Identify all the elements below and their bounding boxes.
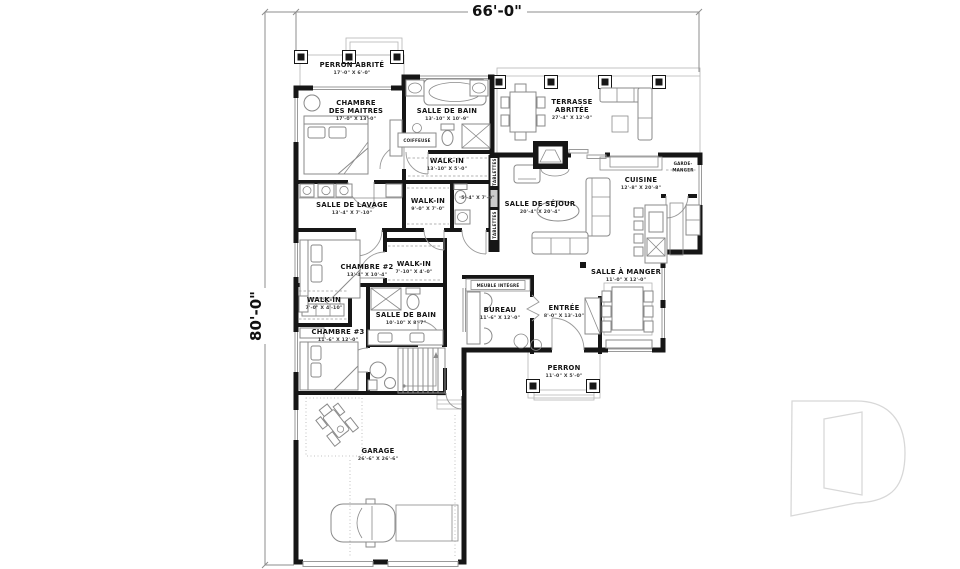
accordion-door-icon	[527, 295, 539, 321]
tablettes-label: TABLETTES	[492, 158, 497, 185]
office-chair-icon	[484, 328, 492, 344]
svg-text:SALLE À MANGER: SALLE À MANGER	[591, 267, 662, 276]
counter-icon	[670, 203, 683, 255]
chair-icon	[644, 321, 653, 332]
svg-text:WALK-IN: WALK-IN	[430, 157, 464, 165]
chair-icon	[515, 84, 526, 92]
svg-text:11'-6" X 12'-0": 11'-6" X 12'-0"	[480, 315, 520, 321]
chair-icon	[515, 132, 526, 140]
label-perron: PERRON 11'-0" X 5'-0"	[546, 364, 583, 379]
shelf-wall-tablettes: TABLETTES TABLETTES	[489, 155, 500, 252]
island-icon	[634, 205, 667, 263]
svg-text:13'-10" X 10'-9": 13'-10" X 10'-9"	[425, 116, 469, 122]
sofa-icon	[586, 178, 610, 236]
svg-text:20'-4" X 20'-4": 20'-4" X 20'-4"	[520, 209, 560, 215]
stool-icon	[634, 221, 643, 230]
chair-icon	[602, 291, 611, 302]
double-vanity-icon	[368, 330, 443, 345]
svg-text:5'-4" X 7'-0": 5'-4" X 7'-0"	[461, 195, 495, 201]
chair-icon	[501, 97, 509, 108]
coiffeuse-label: COIFFEUSE	[403, 138, 430, 143]
counter-icon	[600, 157, 662, 170]
stool-icon	[634, 234, 643, 243]
svg-text:SALLE DE BAIN: SALLE DE BAIN	[417, 107, 477, 115]
brand-d-logo-icon	[791, 401, 905, 516]
bed-icon	[300, 342, 358, 390]
svg-text:GARDE-: GARDE-	[674, 161, 693, 166]
pedestal-sink-icon	[455, 210, 470, 224]
label-walkin-maitres: WALK-IN 13'-10" X 5'-0"	[427, 157, 467, 172]
chair-icon	[644, 291, 653, 302]
chair-icon	[602, 306, 611, 317]
patio-door-icon	[569, 150, 658, 168]
svg-text:26'-6" X 26'-6": 26'-6" X 26'-6"	[358, 456, 398, 462]
svg-text:BUREAU: BUREAU	[484, 306, 517, 314]
svg-text:11'-0" X 12'-0": 11'-0" X 12'-0"	[606, 277, 646, 283]
desk-icon	[467, 292, 480, 344]
svg-text:11'-6" X 12'-0": 11'-6" X 12'-0"	[318, 337, 358, 343]
stool-icon	[634, 247, 643, 256]
svg-text:WALK-IN: WALK-IN	[307, 296, 341, 304]
label-walkin-couloir: WALK-IN 9'-0" X 7'-0"	[411, 197, 445, 212]
stool-icon	[634, 208, 643, 217]
svg-text:10'-10" X 8'-7": 10'-10" X 8'-7"	[386, 320, 426, 326]
chair-icon	[644, 306, 653, 317]
svg-text:DES MAITRES: DES MAITRES	[329, 107, 383, 115]
label-salle-de-bain-2: SALLE DE BAIN 10'-10" X 8'-7"	[376, 311, 436, 326]
label-salle-de-lavage: SALLE DE LAVAGE 13'-4" X 7'-10"	[316, 201, 388, 216]
label-cuisine: CUISINE 12'-8" X 20'-8"	[621, 176, 661, 191]
laundry-sink-icon	[300, 184, 314, 197]
svg-text:CUISINE: CUISINE	[625, 176, 658, 184]
tractor-icon	[311, 398, 358, 446]
svg-text:17'-0" X 6'-0": 17'-0" X 6'-0"	[334, 70, 371, 76]
label-bureau: BUREAU 11'-6" X 12'-0"	[480, 306, 520, 321]
label-walkin-chambre2: WALK-IN 7'-10" X 4'-0"	[396, 260, 433, 275]
patio-table-icon	[501, 84, 545, 140]
svg-text:7'-10" X 4'-0": 7'-10" X 4'-0"	[396, 269, 433, 275]
garage-stoop	[437, 395, 463, 409]
plant-icon	[514, 334, 528, 348]
svg-text:WALK-IN: WALK-IN	[411, 197, 445, 205]
laundry-fixtures	[298, 184, 402, 198]
svg-text:PERRON ABRITÉ: PERRON ABRITÉ	[320, 60, 385, 69]
svg-text:PERRON: PERRON	[547, 364, 580, 372]
island-sink-icon	[649, 212, 663, 232]
fire-table-icon	[612, 116, 628, 132]
svg-text:12'-8" X 20'-8": 12'-8" X 20'-8"	[621, 185, 661, 191]
garage-contents	[306, 398, 458, 558]
shower-icon	[462, 124, 490, 148]
label-chambre-2: CHAMBRE #2 13'-4" X 10'-4"	[340, 263, 393, 278]
label-salle-de-bain-maitres: SALLE DE BAIN 13'-10" X 10'-9"	[417, 107, 477, 122]
label-perron-abrite: PERRON ABRITÉ 17'-0" X 6'-0"	[320, 60, 385, 76]
mechanical-icons	[368, 362, 396, 390]
label-chambre-des-maitres: CHAMBRE DES MAITRES 17'-0" X 13'-0"	[329, 99, 383, 122]
fridge-icon	[686, 205, 700, 235]
label-salle-a-manger: SALLE À MANGER 11'-0" X 12'-0"	[591, 267, 662, 283]
svg-text:WALK-IN: WALK-IN	[397, 260, 431, 268]
label-walkin-chambre3: WALK-IN 7'-0" X 4'-10"	[306, 296, 343, 311]
svg-text:SALLE DE SÉJOUR: SALLE DE SÉJOUR	[505, 199, 576, 208]
water-heater-icon	[370, 362, 386, 378]
svg-text:TERRASSE: TERRASSE	[551, 98, 592, 106]
svg-text:9'-0" X 7'-0": 9'-0" X 7'-0"	[411, 206, 445, 212]
meuble-integre-label: MEUBLE INTÉGRÉ	[477, 283, 520, 288]
porch-column-icon	[527, 380, 600, 393]
svg-text:11'-0" X 5'-0": 11'-0" X 5'-0"	[546, 373, 583, 379]
shower-icon	[371, 288, 401, 310]
chair-icon	[537, 97, 545, 108]
label-chambre-3: CHAMBRE #3 11'-6" X 12'-0"	[311, 328, 364, 343]
svg-text:MANGER: MANGER	[672, 168, 694, 173]
chair-icon	[537, 115, 545, 126]
tablettes-label: TABLETTES	[492, 211, 497, 238]
svg-text:17'-0" X 13'-0": 17'-0" X 13'-0"	[336, 116, 376, 122]
svg-text:ENTRÉE: ENTRÉE	[549, 303, 580, 312]
toilet-icon	[441, 124, 454, 146]
label-toilette-dims: 5'-4" X 7'-0"	[461, 195, 495, 201]
floor-plan-page: TABLETTES TABLETTES	[0, 0, 960, 569]
svg-text:CHAMBRE #3: CHAMBRE #3	[311, 328, 364, 336]
svg-text:27'-4" X 12'-0": 27'-4" X 12'-0"	[552, 115, 592, 121]
svg-text:8'-0" X 13'-10": 8'-0" X 13'-10"	[544, 313, 584, 319]
label-entree: ENTRÉE 8'-0" X 13'-10"	[544, 303, 584, 319]
stairs-icon	[398, 348, 445, 393]
kitchen-fixtures	[600, 157, 700, 263]
bench-icon	[606, 340, 652, 348]
chair-icon	[501, 115, 509, 126]
sofa-icon	[532, 232, 588, 254]
label-garage: GARAGE 26'-6" X 26'-6"	[358, 447, 398, 462]
room-labels: PERRON ABRITÉ 17'-0" X 6'-0" CHAMBRE DES…	[306, 60, 695, 462]
bed-icon	[304, 116, 368, 174]
svg-text:13'-10" X 5'-0": 13'-10" X 5'-0"	[427, 166, 467, 172]
chair-icon	[602, 321, 611, 332]
svg-text:CHAMBRE #2: CHAMBRE #2	[340, 263, 393, 271]
toilet-icon	[406, 288, 420, 310]
label-terrasse-abritee: TERRASSE ABRITÉE 27'-4" X 12'-0"	[551, 98, 592, 121]
overall-width-dimension: 66'-0"	[472, 2, 522, 20]
svg-text:SALLE DE LAVAGE: SALLE DE LAVAGE	[316, 201, 388, 209]
dining-table-icon	[602, 287, 653, 332]
cabinet-icon	[386, 184, 402, 197]
label-garde-manger: GARDE- MANGER	[672, 161, 694, 173]
overall-height-dimension: 80'-0"	[247, 291, 265, 341]
svg-text:CHAMBRE: CHAMBRE	[336, 99, 376, 107]
svg-text:GARAGE: GARAGE	[361, 447, 394, 455]
svg-text:ABRITÉE: ABRITÉE	[555, 105, 589, 114]
svg-text:13'-4" X 10'-4": 13'-4" X 10'-4"	[347, 272, 387, 278]
front-door-icon	[552, 318, 584, 353]
svg-text:SALLE DE BAIN: SALLE DE BAIN	[376, 311, 436, 319]
svg-text:7'-0" X 4'-10": 7'-0" X 4'-10"	[306, 305, 343, 311]
svg-text:13'-4" X 7'-10": 13'-4" X 7'-10"	[332, 210, 372, 216]
floor-plan-svg: TABLETTES TABLETTES	[0, 0, 960, 569]
water-softener-icon	[385, 378, 396, 389]
post-icon	[580, 262, 586, 268]
